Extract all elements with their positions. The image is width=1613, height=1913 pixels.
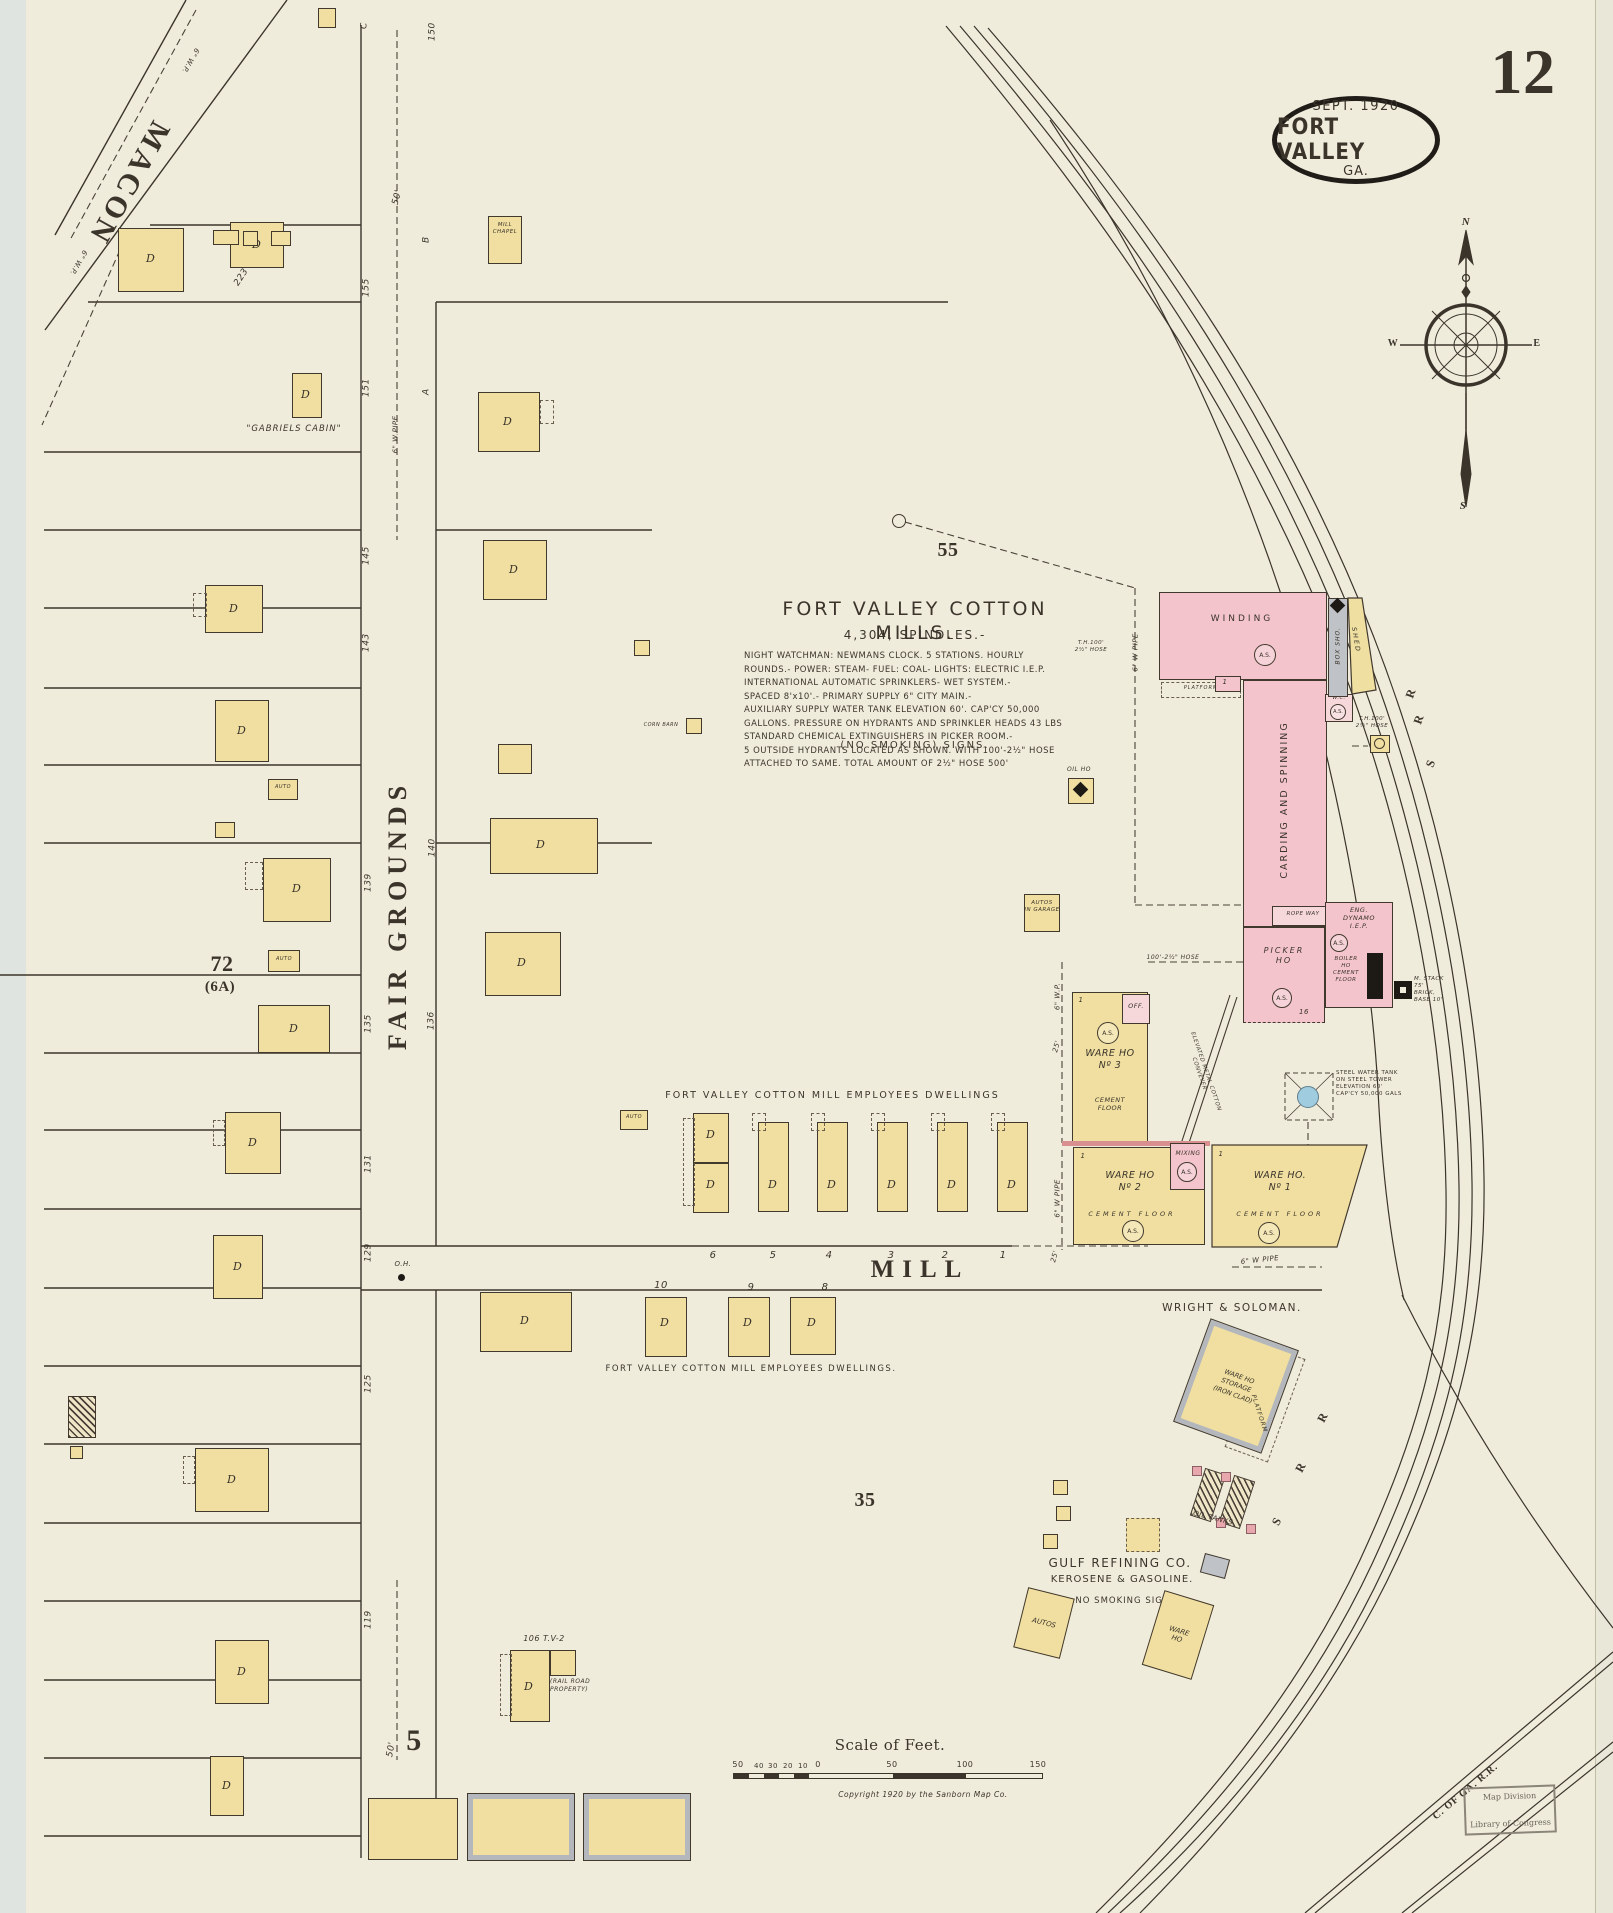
lot-155: 155 bbox=[361, 275, 372, 301]
dwelling-porch bbox=[213, 1120, 225, 1146]
story-1-a: 1 bbox=[1076, 996, 1086, 1005]
house-number: 9 bbox=[744, 1282, 758, 1295]
compass-south-label: S bbox=[1456, 500, 1470, 514]
sprinkler-symbol-winding: A.S. bbox=[1254, 644, 1276, 666]
lot-125: 125 bbox=[363, 1371, 374, 1397]
ware-ho-1-shape bbox=[1212, 1145, 1367, 1247]
dwelling-label: D bbox=[706, 1128, 715, 1141]
water-tank-label: STEEL WATER TANK ON STEEL TOWER ELEVATIO… bbox=[1336, 1070, 1422, 1098]
scale-title: Scale of Feet. bbox=[800, 1736, 980, 1755]
block-5: 5 bbox=[398, 1722, 430, 1760]
auto-label: AUTO bbox=[268, 956, 300, 962]
dwelling-label: D bbox=[248, 1136, 257, 1149]
dwelling-porch bbox=[183, 1456, 195, 1484]
gulf-kerosene-label: KEROSENE & GASOLINE. bbox=[1050, 1574, 1194, 1587]
dwelling-porch bbox=[500, 1654, 512, 1716]
scale-tick: 0 bbox=[810, 1760, 826, 1770]
ware-ho-1-label: WARE HO. Nº 1 bbox=[1240, 1170, 1320, 1194]
scale-tick: 150 bbox=[1028, 1760, 1048, 1770]
story-1-b: 1 bbox=[1078, 1152, 1088, 1161]
lot-145: 145 bbox=[361, 543, 372, 569]
sprinkler-symbol-engine: A.S. bbox=[1330, 934, 1348, 952]
library-stamp: Map Division Library of Congress bbox=[1463, 1784, 1557, 1835]
scale-tick: 20 bbox=[780, 1762, 796, 1771]
dwelling bbox=[877, 1122, 908, 1212]
tank-support bbox=[1192, 1466, 1202, 1476]
auto-label-row: AUTO bbox=[620, 1114, 648, 1120]
water-tank bbox=[1297, 1086, 1319, 1108]
dwelling-label: D bbox=[536, 838, 545, 851]
lot-151: 151 bbox=[361, 375, 372, 401]
compass-west-label: W bbox=[1386, 338, 1400, 351]
lot-119: 119 bbox=[363, 1607, 374, 1633]
stack-symbol-core bbox=[1400, 987, 1406, 993]
mill-note-no-smoking: (NO SMOKING) SIGNS. bbox=[740, 740, 1090, 753]
dwelling-label: D bbox=[237, 1665, 246, 1678]
corn-barn-label: CORN BARN bbox=[638, 722, 684, 728]
dwelling-label: D bbox=[233, 1260, 242, 1273]
boiler-block bbox=[1367, 953, 1383, 999]
sprinkler-symbol-ware2: A.S. bbox=[1122, 1220, 1144, 1242]
sanborn-map-sheet: 12 SEPT. 1920 FORT VALLEY GA. N W E S MA… bbox=[0, 0, 1613, 1913]
house-number: 4 bbox=[822, 1250, 836, 1263]
building-picker-house bbox=[1243, 927, 1325, 1023]
ware-ho-building-label: WARE HO bbox=[1166, 1624, 1190, 1645]
hydrant-dot bbox=[398, 1274, 405, 1281]
sprinkler-symbol-mixing: A.S. bbox=[1177, 1162, 1197, 1182]
block-6a: (6A) bbox=[192, 978, 248, 997]
block-72: 72 bbox=[200, 950, 244, 978]
tank-support bbox=[1246, 1524, 1256, 1534]
open-shed bbox=[1126, 1518, 1160, 1552]
scale-tick: 100 bbox=[955, 1760, 975, 1770]
dwelling-label: D bbox=[292, 882, 301, 895]
corner-shop bbox=[213, 230, 239, 245]
small-building bbox=[1043, 1534, 1058, 1549]
dwelling-porch bbox=[871, 1113, 885, 1131]
dwelling-label: D bbox=[227, 1473, 236, 1486]
scale-bar: 50 40 30 20 10 0 50 100 150 bbox=[728, 1760, 1050, 1786]
dwelling-label: D bbox=[237, 724, 246, 737]
employees-dwellings-label-2: FORT VALLEY COTTON MILL EMPLOYEES DWELLI… bbox=[596, 1364, 906, 1375]
house-number: 10 bbox=[652, 1280, 670, 1293]
mill-note-spindles: 4,304, SPINDLES.- bbox=[740, 628, 1090, 643]
ware-ho-3-floor: CEMENT FLOOR bbox=[1080, 1096, 1140, 1112]
ware-ho-1-floor: CEMENT FLOOR bbox=[1230, 1210, 1330, 1218]
sprinkler-symbol-picker: A.S. bbox=[1272, 988, 1292, 1008]
autos-garage-label: AUTOS IN GARAGE bbox=[1018, 900, 1066, 914]
warehouse-plain bbox=[368, 1798, 458, 1860]
street-mill: MILL bbox=[853, 1254, 987, 1280]
dwelling-porch bbox=[811, 1113, 825, 1131]
lot-140: 140 bbox=[427, 835, 438, 861]
block-55: 55 bbox=[928, 538, 968, 563]
sprinkler-symbol-ware1: A.S. bbox=[1258, 1222, 1280, 1244]
office-label: OFF. bbox=[1122, 1002, 1150, 1010]
scale-tick: 30 bbox=[765, 1762, 781, 1771]
warehouse-iron-clad bbox=[584, 1794, 690, 1860]
small-building bbox=[498, 744, 532, 774]
scale-tick: 10 bbox=[795, 1762, 811, 1771]
dwelling-label: D bbox=[289, 1022, 298, 1035]
pipe-label-ware2: 6" W PIPE bbox=[1054, 1170, 1063, 1226]
compass-east-label: E bbox=[1530, 338, 1544, 351]
dwelling-porch bbox=[193, 593, 207, 617]
hydrant-label-yard: T.H.100' 2½" HOSE bbox=[1072, 640, 1110, 654]
auto-label: AUTO bbox=[268, 784, 298, 790]
small-building bbox=[70, 1446, 83, 1459]
tank-support bbox=[1221, 1472, 1231, 1482]
dwelling-porch bbox=[931, 1113, 945, 1131]
dwelling-label: D bbox=[222, 1779, 231, 1792]
pipe-label-mill-yard: 6" W PIPE bbox=[1132, 624, 1141, 680]
dwelling-label: D bbox=[807, 1316, 816, 1329]
sprinkler-symbol-ware3: A.S. bbox=[1097, 1022, 1119, 1044]
dwelling-label: D bbox=[743, 1316, 752, 1329]
dwelling bbox=[997, 1122, 1028, 1212]
carding-spinning-label: CARDING AND SPINNING bbox=[1279, 680, 1291, 920]
sprinkler-symbol-wc: A.S. bbox=[1330, 704, 1346, 720]
mixing-label: MIXING bbox=[1166, 1150, 1210, 1158]
lot-131: 131 bbox=[363, 1151, 374, 1177]
box-shop-label: BOX SHO. bbox=[1334, 608, 1342, 684]
dwelling-label: D bbox=[503, 415, 512, 428]
street-fair-grounds: FAIR GROUNDS bbox=[382, 690, 412, 1140]
compass-north-label: N bbox=[1458, 216, 1474, 230]
dwelling-label: D bbox=[827, 1178, 836, 1191]
dwelling-label: D bbox=[509, 563, 518, 576]
scale-tick: 50 bbox=[884, 1760, 900, 1770]
dwelling-label: D bbox=[768, 1178, 777, 1191]
corn-barn-box bbox=[686, 718, 702, 734]
house-number: 5 bbox=[766, 1250, 780, 1263]
dwelling-label: D bbox=[947, 1178, 956, 1191]
hose-100-label: 100'-2½" HOSE bbox=[1146, 954, 1200, 962]
corner-shop bbox=[271, 231, 291, 246]
dwelling-label: D bbox=[887, 1178, 896, 1191]
dwelling-porch bbox=[991, 1113, 1005, 1131]
story-1-c: 1 bbox=[1216, 1150, 1226, 1159]
house-number: 2 bbox=[938, 1250, 952, 1263]
scale-tick: 50 bbox=[730, 1760, 746, 1770]
mill-chapel-label: MILL CHAPEL bbox=[486, 222, 524, 236]
lot-c: C bbox=[359, 19, 370, 33]
hydrant-circle bbox=[892, 514, 906, 528]
winding-label: WINDING bbox=[1182, 614, 1302, 625]
dwelling-label: D bbox=[660, 1316, 669, 1329]
dwelling-label: D bbox=[706, 1178, 715, 1191]
picker-house-label: PICKER HO bbox=[1246, 946, 1322, 966]
dwelling-annex bbox=[550, 1650, 576, 1676]
boiler-label: BOILER HO CEMENT FLOOR bbox=[1326, 956, 1366, 984]
dwelling-label: D bbox=[517, 956, 526, 969]
dwelling-porch bbox=[540, 400, 554, 424]
house-number: 6 bbox=[706, 1250, 720, 1263]
hydrant-label-th: T.H.100' 2½" HOSE bbox=[1350, 716, 1394, 730]
small-building bbox=[318, 8, 336, 28]
stamp-state: GA. bbox=[1343, 165, 1369, 179]
rr-property-label: (RAIL ROAD PROPERTY) bbox=[550, 1678, 608, 1693]
mill-note-body: NIGHT WATCHMAN: NEWMANS CLOCK. 5 STATION… bbox=[744, 650, 1092, 772]
engine-label: ENG. DYNAMO I.E.P. bbox=[1328, 906, 1390, 930]
building-winding bbox=[1159, 592, 1327, 680]
dwelling bbox=[937, 1122, 968, 1212]
dwelling-porch bbox=[683, 1118, 695, 1206]
employees-dwellings-label-1: FORT VALLEY COTTON MILL EMPLOYEES DWELLI… bbox=[645, 1090, 1020, 1102]
hose-house-th-circle bbox=[1374, 738, 1385, 749]
autos-building-label: AUTOS bbox=[1031, 1616, 1056, 1630]
lot-143: 143 bbox=[361, 630, 372, 656]
stamp-date: SEPT. 1920 bbox=[1312, 100, 1399, 114]
small-outbuilding bbox=[634, 640, 650, 656]
sheet-number: 12 bbox=[1478, 40, 1568, 120]
warehouse-iron-clad bbox=[468, 1794, 574, 1860]
ware-ho-3-label: WARE HO Nº 3 bbox=[1076, 1048, 1144, 1072]
title-oval: SEPT. 1920 FORT VALLEY GA. bbox=[1272, 96, 1440, 184]
small-building bbox=[1053, 1480, 1068, 1495]
dwelling-porch bbox=[245, 862, 263, 890]
library-stamp-line1: Map Division bbox=[1467, 1791, 1551, 1803]
picker-16: 16 bbox=[1296, 1008, 1312, 1017]
dwelling-label: D bbox=[1007, 1178, 1016, 1191]
lot-136: 136 bbox=[426, 1008, 437, 1034]
oh-label: O.H. bbox=[392, 1260, 414, 1269]
library-stamp-line2: Library of Congress bbox=[1468, 1818, 1552, 1830]
house-number: 1 bbox=[996, 1250, 1010, 1263]
ware-ho-2-floor: CEMENT FLOOR bbox=[1082, 1210, 1182, 1218]
lot-150: 150 bbox=[427, 19, 438, 45]
dwelling-label: D bbox=[524, 1680, 533, 1693]
stack-label: M. STACK 75' BRICK, BASE 10' bbox=[1414, 976, 1462, 1004]
gabriels-cabin-label: "GABRIELS CABIN" bbox=[224, 424, 364, 435]
lot-b: B bbox=[421, 233, 432, 247]
wright-soloman-label: WRIGHT & SOLOMAN. bbox=[1162, 1302, 1302, 1315]
pipe-label-ware3: 6" W.P. bbox=[1054, 974, 1063, 1018]
house-number: 3 bbox=[884, 1250, 898, 1263]
block-35: 35 bbox=[845, 1488, 885, 1513]
oil-house-label: OIL HO bbox=[1054, 766, 1104, 774]
house-number: 8 bbox=[818, 1282, 832, 1295]
small-building bbox=[1056, 1506, 1071, 1521]
lot-139: 139 bbox=[363, 870, 374, 896]
stamp-city: FORT VALLEY bbox=[1277, 115, 1435, 166]
corner-shop bbox=[243, 231, 258, 246]
hatched-outbuilding bbox=[68, 1396, 96, 1438]
dwelling-label: D bbox=[301, 388, 310, 401]
tv106-label: 106 T.V-2 bbox=[514, 1634, 574, 1644]
story-1-d: 1 bbox=[1220, 678, 1230, 687]
dwelling-label: D bbox=[520, 1314, 529, 1327]
small-building bbox=[215, 822, 235, 838]
lot-129: 129 bbox=[363, 1240, 374, 1266]
lot-135: 135 bbox=[363, 1011, 374, 1037]
dwelling-porch bbox=[752, 1113, 766, 1131]
pipe-label-fg: 6" W.PIPE bbox=[392, 406, 401, 462]
dwelling-label: D bbox=[229, 602, 238, 615]
lot-a: A bbox=[421, 385, 432, 399]
dwelling bbox=[817, 1122, 848, 1212]
gulf-refining-label: GULF REFINING CO. bbox=[1036, 1556, 1204, 1571]
ware-ho-2-label: WARE HO Nº 2 bbox=[1090, 1170, 1170, 1194]
scale-copyright: Copyright 1920 by the Sanborn Map Co. bbox=[808, 1790, 1038, 1799]
scale-bar-rule bbox=[733, 1773, 1043, 1779]
compass-rose bbox=[1400, 230, 1532, 507]
dwelling bbox=[758, 1122, 789, 1212]
dwelling-label: D bbox=[146, 252, 155, 265]
